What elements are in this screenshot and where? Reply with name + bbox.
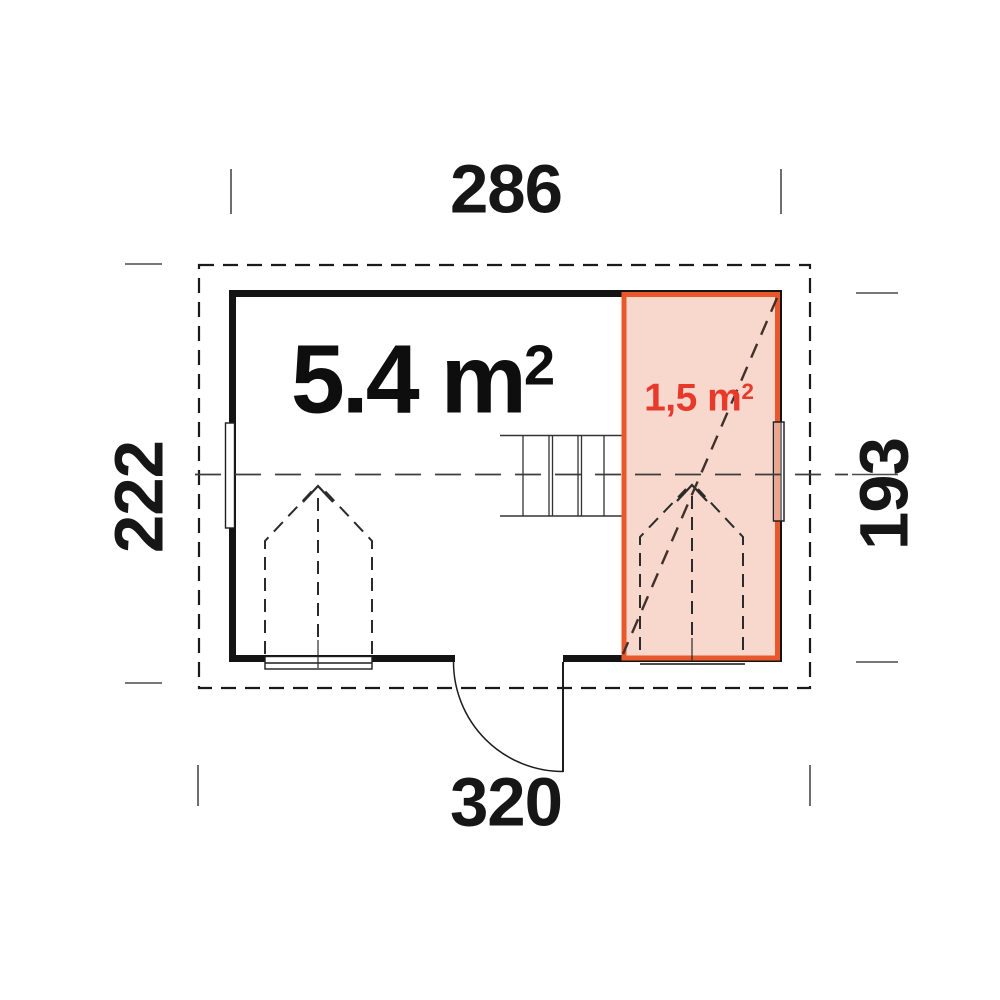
annex-area-value: 1,5 m [644,377,741,420]
floor-plan: 286 222 193 320 5.4 m2 1,5 m2 [0,0,1000,1000]
entrance-door [454,662,564,772]
stairs [500,436,622,517]
dimension-top-label: 286 [450,155,562,224]
annex-area-exponent: 2 [741,379,754,404]
dimension-bottom-label: 320 [450,768,562,837]
main-area-label: 5.4 m2 [291,331,555,428]
annex-area-label: 1,5 m2 [644,379,754,418]
window-right [774,422,785,521]
direction-arrow-left [265,486,372,668]
dimension-right-label: 193 [850,438,919,550]
main-area-exponent: 2 [524,333,555,396]
door-swing-arc [454,662,564,772]
dimension-left-label: 222 [105,441,174,553]
window-left [226,423,235,528]
main-area-value: 5.4 m [291,325,524,434]
